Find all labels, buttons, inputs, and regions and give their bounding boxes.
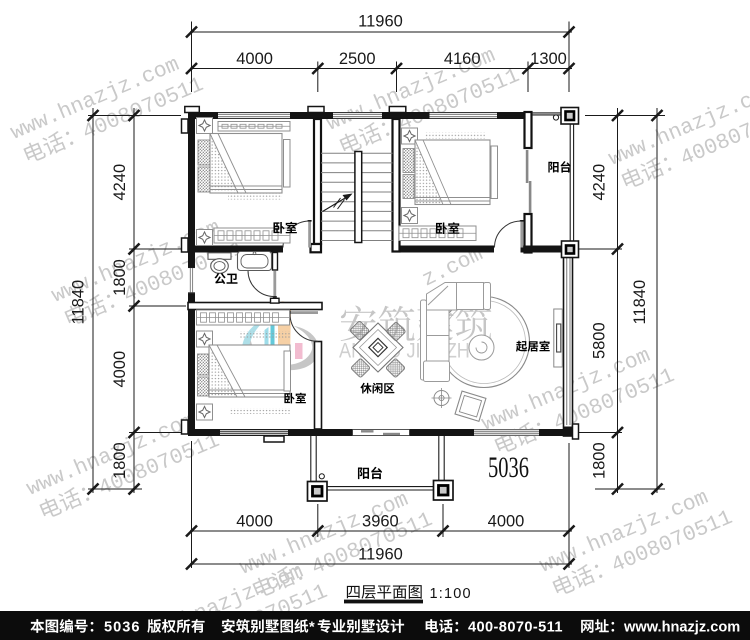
svg-text:4160: 4160 [444, 50, 481, 68]
svg-text:4000: 4000 [236, 50, 273, 68]
svg-text:5036: 5036 [104, 620, 140, 636]
svg-text:4240: 4240 [591, 164, 609, 201]
svg-text:1:100: 1:100 [430, 586, 472, 602]
svg-text:www.hnazjz.com: www.hnazjz.com [623, 620, 740, 636]
svg-text:4000: 4000 [111, 351, 129, 388]
svg-text:3960: 3960 [362, 513, 399, 531]
svg-text:11840: 11840 [70, 280, 88, 325]
svg-text:1800: 1800 [591, 442, 609, 479]
svg-text:4240: 4240 [111, 164, 129, 201]
svg-text:11960: 11960 [358, 546, 403, 564]
svg-text:5036: 5036 [488, 451, 529, 484]
svg-text:*: * [309, 620, 315, 636]
svg-text:1800: 1800 [111, 442, 129, 479]
svg-text:4000: 4000 [488, 513, 525, 531]
svg-text:11960: 11960 [358, 13, 403, 31]
svg-text:11840: 11840 [631, 280, 649, 325]
svg-text:1300: 1300 [530, 50, 567, 68]
svg-text:4000: 4000 [236, 513, 273, 531]
svg-text:1800: 1800 [111, 259, 129, 296]
svg-text:2500: 2500 [339, 50, 376, 68]
svg-text:400-8070-511: 400-8070-511 [468, 620, 563, 636]
svg-text:5800: 5800 [591, 322, 609, 359]
